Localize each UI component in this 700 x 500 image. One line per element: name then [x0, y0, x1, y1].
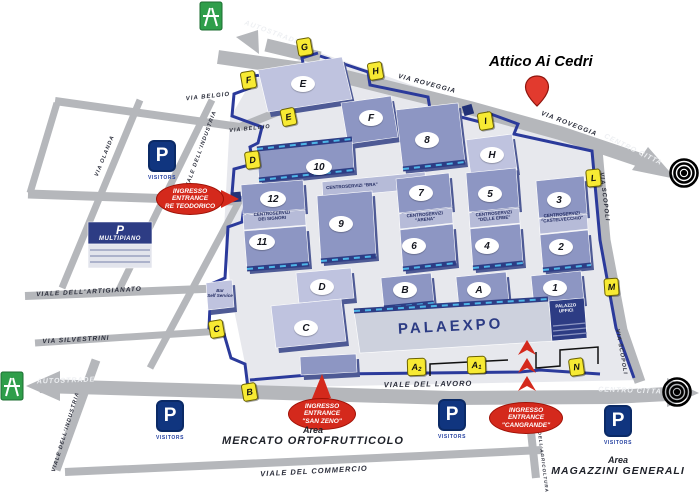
road-viale-commercio: [65, 450, 542, 472]
motorway-icon-top: [200, 2, 222, 30]
autostrade-top-arrow: [236, 30, 259, 54]
target-icon-top: [671, 160, 698, 187]
hall-9: [317, 191, 376, 261]
bar-bldg: [206, 280, 234, 310]
hall-5: [466, 168, 519, 212]
road-teodorico-road: [28, 194, 236, 201]
location-pin-icon: [526, 76, 549, 106]
multipiano-top: [88, 222, 152, 244]
road-industria-lower: [56, 360, 96, 470]
target-icon-bottom: [664, 379, 691, 406]
hall-3: [536, 176, 587, 218]
hall-8: [396, 103, 465, 169]
south-wall: [300, 354, 357, 375]
hall-D: [296, 268, 354, 303]
road-lavoro-autostrade: [40, 386, 668, 398]
hall-C: [271, 299, 346, 348]
autostrade-left-arrow: [26, 371, 60, 401]
fairground-map: Attico Ai Cedri PALAEXPO AUTOSTRADEVIA R…: [0, 0, 700, 500]
road-viale-agricoltura: [528, 404, 536, 478]
hall-7: [396, 173, 452, 213]
motorway-icon-bottom: [1, 372, 23, 400]
road-left-edge: [30, 103, 57, 193]
map-canvas: [0, 0, 700, 500]
road-via-silvestrini: [35, 331, 222, 343]
hall-12: [241, 180, 305, 214]
road-viale-artigianato: [25, 288, 228, 296]
